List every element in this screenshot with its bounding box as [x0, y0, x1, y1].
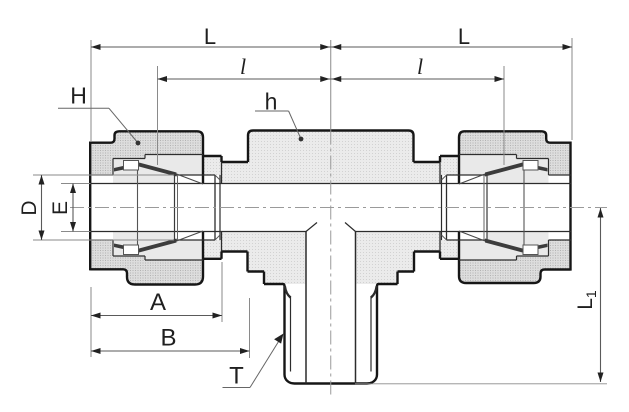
svg-text:B: B — [160, 325, 176, 352]
svg-text:H: H — [70, 83, 87, 109]
svg-text:A: A — [150, 289, 166, 316]
svg-text:L: L — [204, 24, 216, 49]
svg-text:l: l — [240, 54, 246, 79]
svg-text:E: E — [49, 201, 72, 215]
svg-text:L: L — [458, 24, 470, 49]
svg-text:l: l — [417, 54, 423, 79]
svg-text:D: D — [18, 200, 41, 215]
svg-text:T: T — [229, 363, 244, 390]
